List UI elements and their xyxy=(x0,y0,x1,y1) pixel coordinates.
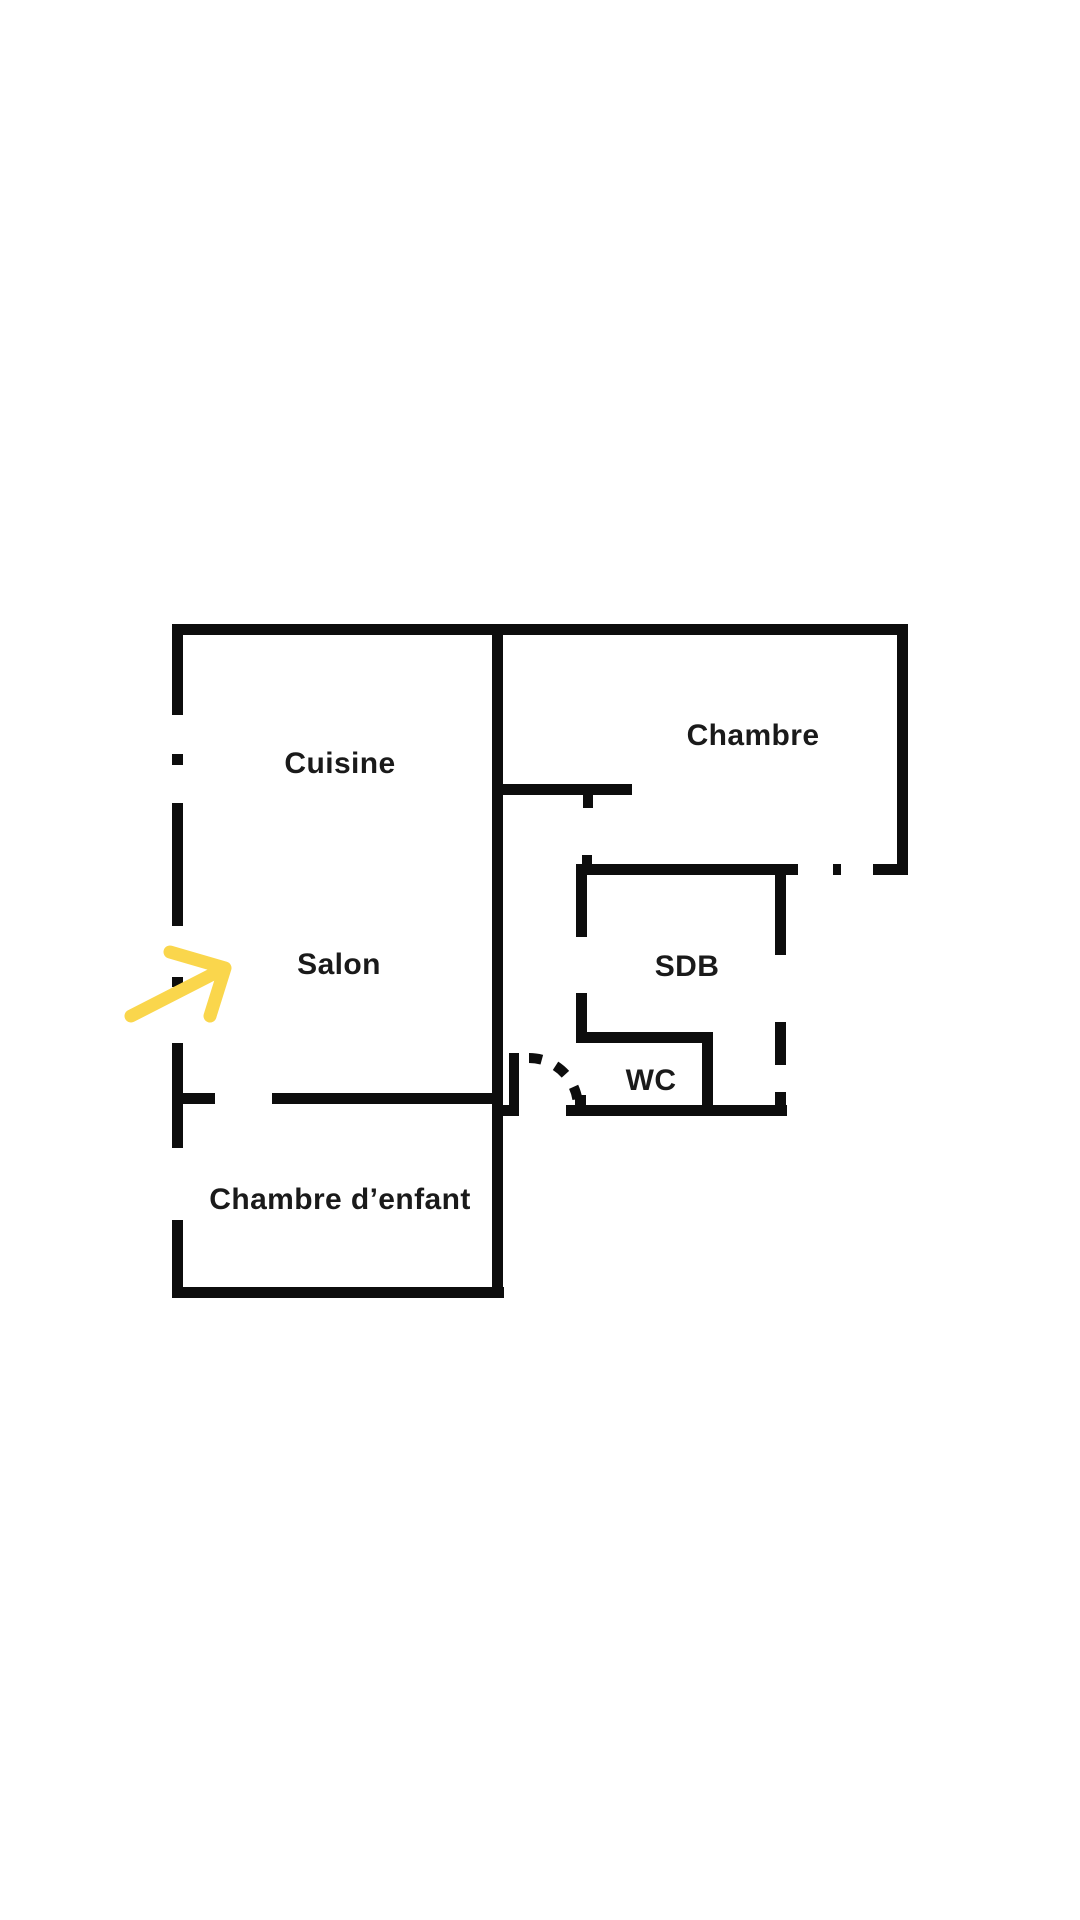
sdb-right-wall-seg-2 xyxy=(775,1022,786,1065)
floor-plan: Cuisine Chambre Salon SDB WC Chambre d’e… xyxy=(0,0,1080,1920)
left-wall-seg-1 xyxy=(172,624,183,715)
salon-wall-stub xyxy=(183,1093,215,1104)
wc-right-wall xyxy=(702,1032,713,1116)
left-wall-seg-4 xyxy=(172,1220,183,1298)
wc-top-wall xyxy=(576,1032,713,1043)
sdb-top-jamb-up xyxy=(582,855,592,865)
sdb-bottom-wall xyxy=(566,1105,787,1116)
chambre-door-dash xyxy=(833,864,841,875)
room-label-chambre: Chambre xyxy=(687,719,820,752)
sdb-right-wall-seg-3 xyxy=(775,1092,786,1116)
room-label-wc: WC xyxy=(626,1064,677,1097)
top-wall xyxy=(172,624,908,635)
left-wall-window-dash-1 xyxy=(172,754,183,765)
salon-wall-main xyxy=(272,1093,492,1104)
left-wall-seg-2 xyxy=(172,803,183,926)
chambre-right-wall xyxy=(897,624,908,875)
room-label-sdb: SDB xyxy=(655,950,720,983)
bottom-wall xyxy=(172,1287,504,1298)
wc-door-swing-arc xyxy=(529,1058,578,1107)
room-label-salon: Salon xyxy=(297,948,381,981)
sdb-top-wall xyxy=(576,864,798,875)
sdb-left-wall-upper xyxy=(576,864,587,937)
room-label-chambre-enfant: Chambre d’enfant xyxy=(209,1183,470,1216)
left-wall-seg-3 xyxy=(172,1043,183,1148)
chambre-right-foot xyxy=(873,864,908,875)
hall-jamb-down xyxy=(583,795,593,808)
room-label-cuisine: Cuisine xyxy=(284,747,395,780)
wc-door-jamb-foot xyxy=(503,1105,519,1116)
sdb-right-wall-seg-1 xyxy=(775,875,786,955)
hall-wall xyxy=(503,784,632,795)
central-wall xyxy=(492,624,503,1298)
